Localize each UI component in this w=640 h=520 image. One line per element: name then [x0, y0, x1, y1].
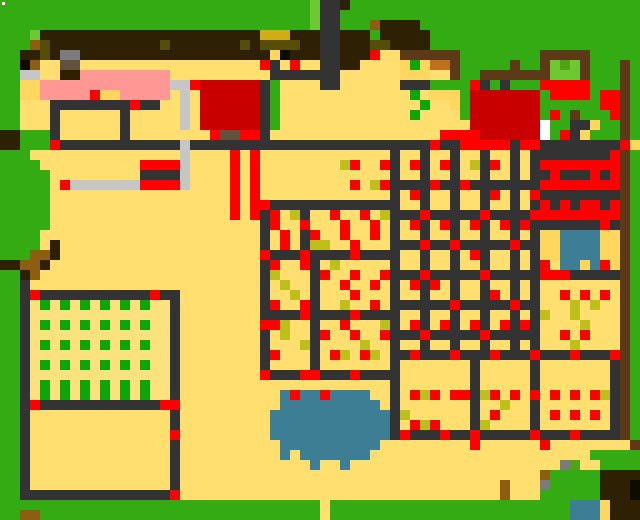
region-watchtower[interactable]	[320, 0, 340, 85]
region-left-orchard-plots[interactable]	[260, 200, 395, 380]
game-world-map[interactable]	[0, 0, 640, 520]
region-blue-pool[interactable]	[555, 225, 605, 270]
region-stone-path[interactable]	[55, 155, 195, 195]
region-crop-field[interactable]	[20, 285, 175, 410]
region-tree-grove-north[interactable]	[40, 30, 430, 65]
region-orchard-plot-grid[interactable]	[390, 150, 540, 360]
region-herb-garden[interactable]	[540, 55, 595, 85]
region-red-striped-shrine[interactable]	[530, 150, 620, 230]
region-dark-red-building[interactable]	[200, 80, 260, 130]
region-pond[interactable]	[265, 388, 390, 473]
region-south-paddock[interactable]	[20, 410, 175, 500]
region-pink-roof-house[interactable]	[40, 70, 170, 105]
